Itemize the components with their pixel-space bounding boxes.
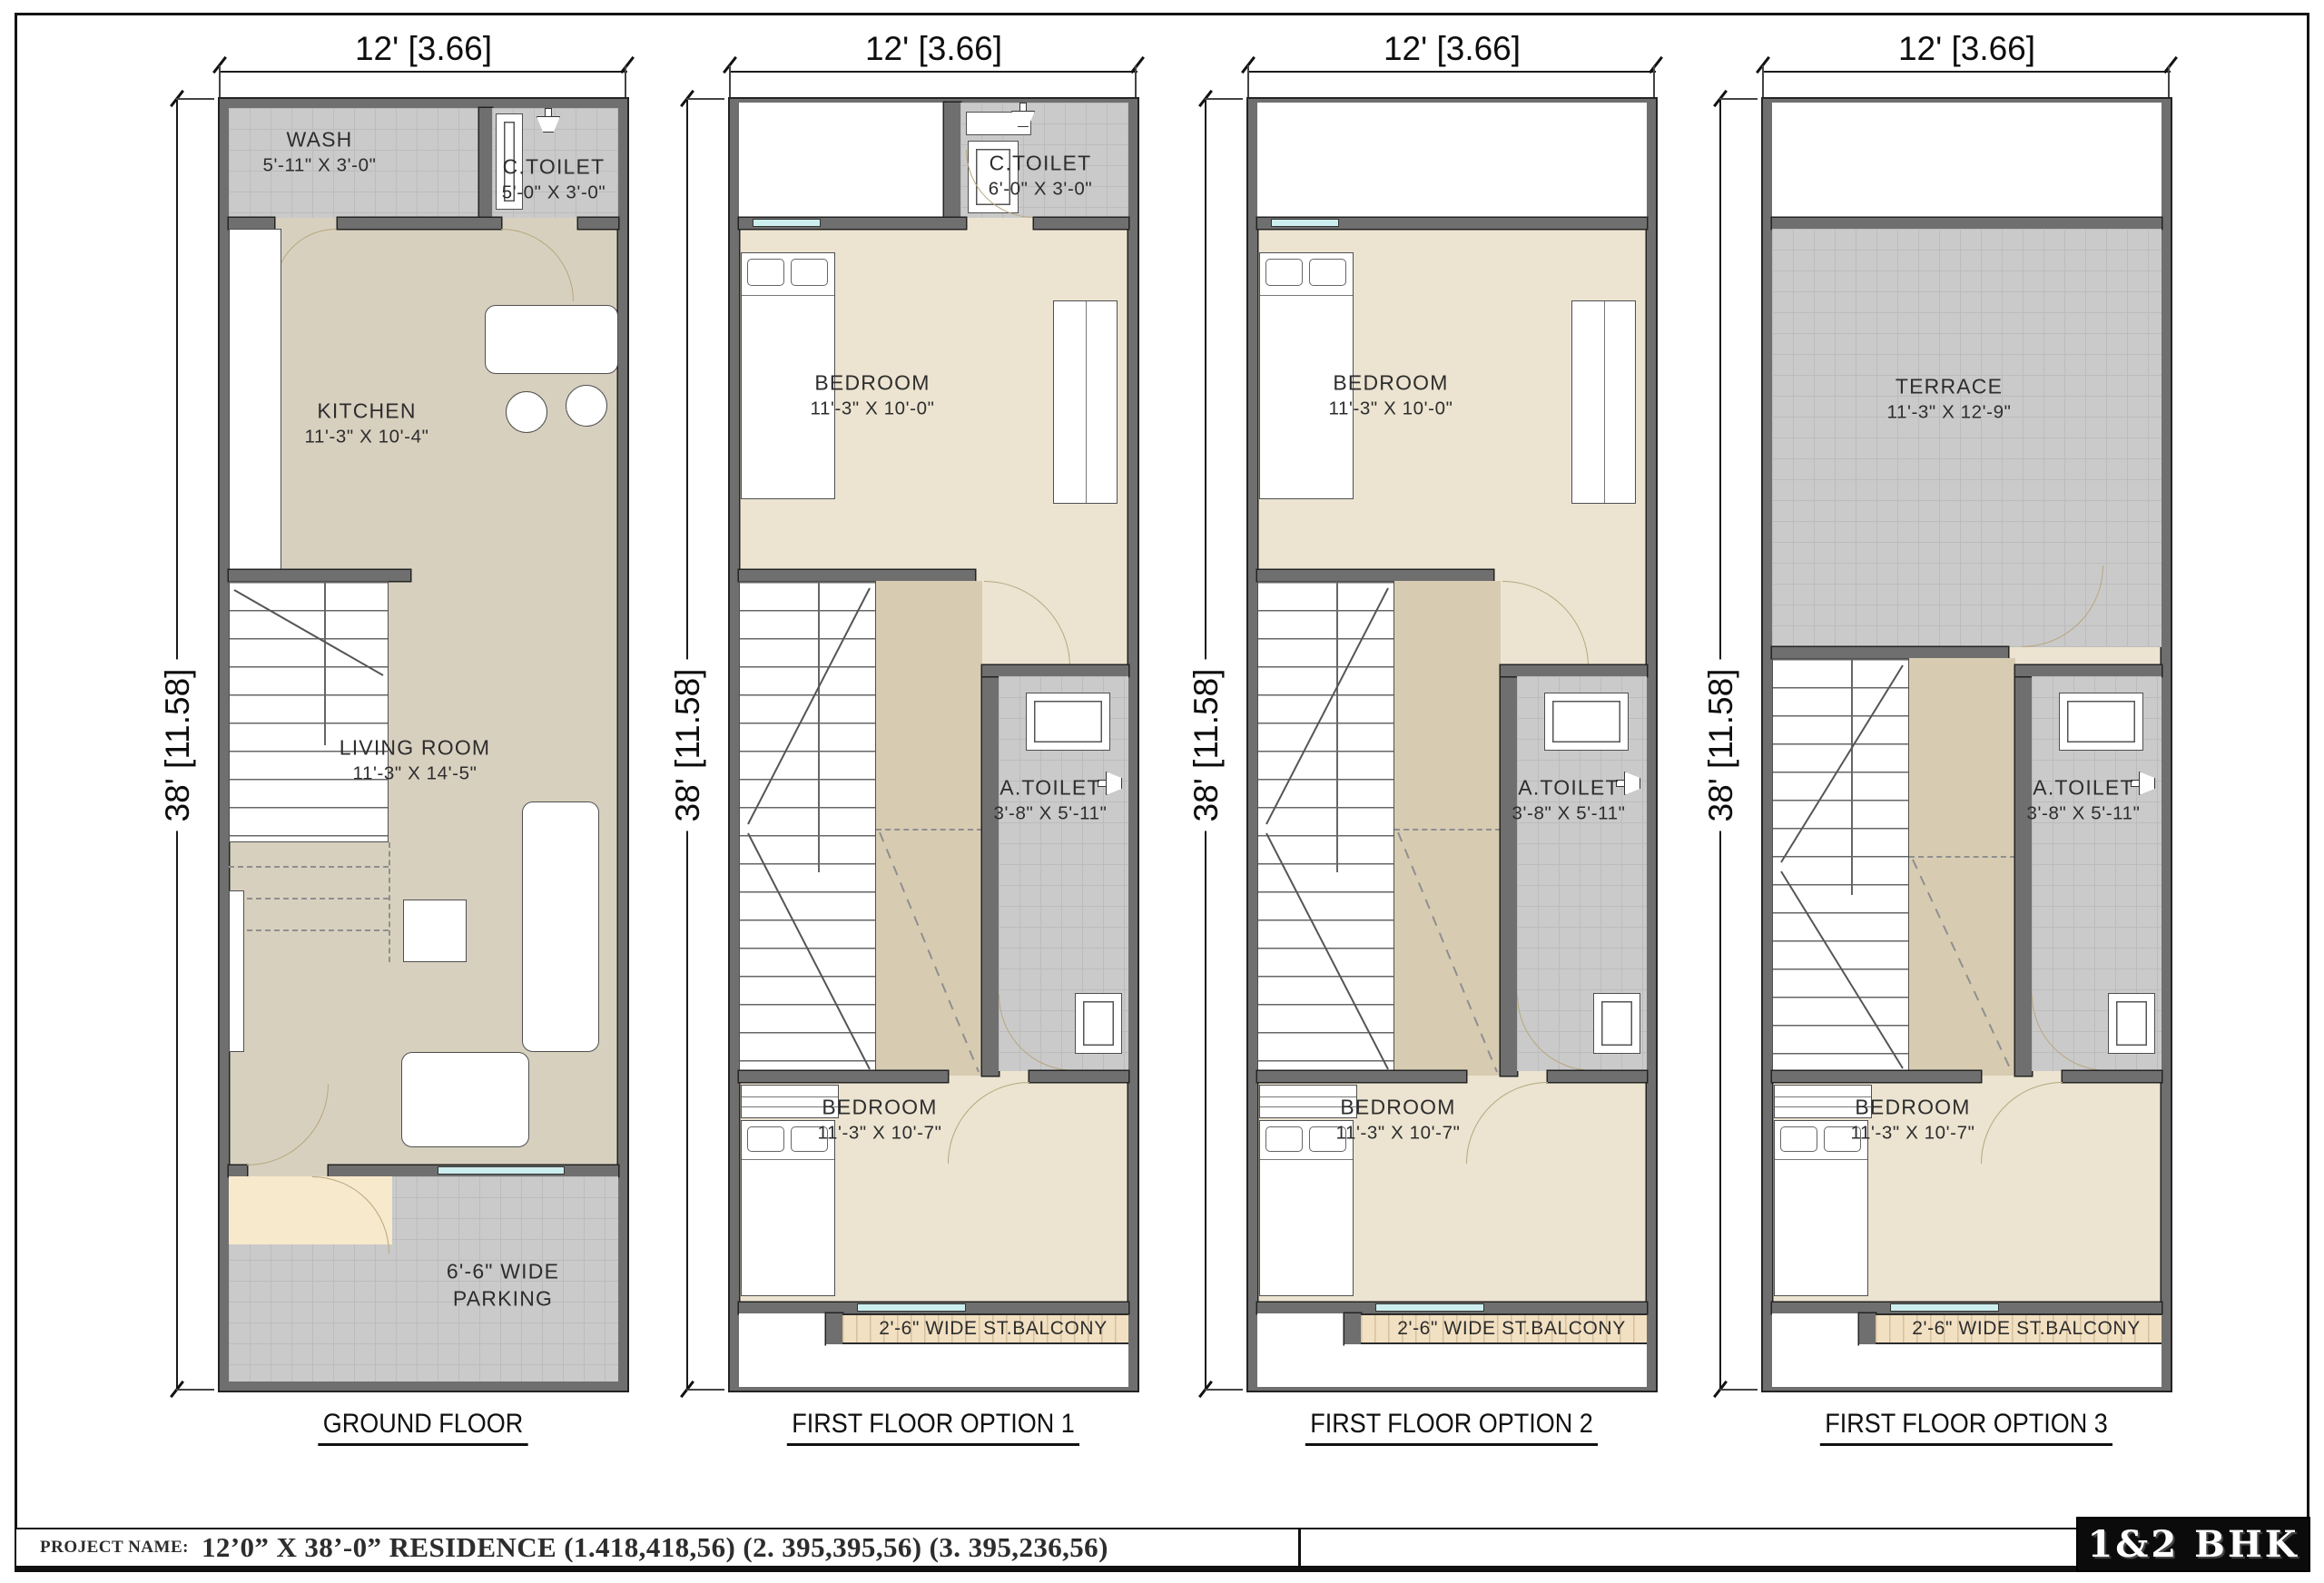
pillow bbox=[747, 259, 784, 286]
dining-table bbox=[485, 305, 618, 374]
dim-line-top: 12' [3.66] bbox=[730, 71, 1137, 73]
wall bbox=[739, 1071, 948, 1082]
open-area bbox=[1257, 1313, 1344, 1387]
wall bbox=[826, 1313, 842, 1344]
c-toilet-label: C.TOILET 6'-0" X 3'-0" bbox=[989, 149, 1093, 201]
dim-width-label: 12' [3.66] bbox=[1889, 30, 2044, 68]
bedroom-label: BEDROOM 11'-3" X 10'-0" bbox=[1329, 369, 1453, 420]
plan-first-floor-option-2: BEDROOM 11'-3" X 10'-0" A.TOILET 3'-8" X… bbox=[1248, 99, 1656, 1391]
parking-label: 6'-6" WIDE PARKING bbox=[447, 1258, 559, 1313]
wall bbox=[1029, 1071, 1128, 1082]
bed-line bbox=[742, 1159, 834, 1160]
plan-first-floor-option-1: C.TOILET 6'-0" X 3'-0" BEDROOM 11'-3" X … bbox=[730, 99, 1137, 1391]
witness-line bbox=[1719, 98, 1758, 100]
bhk-badge: 1&2 BHK bbox=[2076, 1517, 2310, 1572]
stair-dashed-line bbox=[229, 929, 389, 931]
witness-line bbox=[1205, 98, 1243, 100]
sink-icon bbox=[1008, 103, 1039, 128]
dim-line-side: 38' [11.58] bbox=[1719, 99, 1721, 1391]
bedroom-label: BEDROOM 11'-3" X 10'-7" bbox=[818, 1093, 942, 1145]
dim-height-label: 38' [11.58] bbox=[1187, 659, 1226, 831]
wc bbox=[1593, 993, 1640, 1054]
a-toilet-label: A.TOILET 3'-8" X 5'-11" bbox=[2027, 773, 2141, 825]
landing-dashed-diagonal bbox=[1909, 856, 2015, 1076]
witness-line bbox=[686, 98, 724, 100]
window bbox=[438, 1166, 565, 1175]
vanity bbox=[1544, 693, 1629, 751]
wardrobe bbox=[1571, 300, 1636, 504]
pillow bbox=[747, 1126, 784, 1152]
bedroom-label: BEDROOM 11'-3" X 10'-7" bbox=[1336, 1093, 1461, 1145]
wall bbox=[338, 218, 501, 229]
wall bbox=[1257, 570, 1493, 581]
dining-chair bbox=[566, 385, 607, 427]
wall bbox=[1344, 1313, 1361, 1344]
door-arc bbox=[247, 1084, 329, 1165]
title-bar-divider bbox=[1298, 1529, 1301, 1566]
wall bbox=[2015, 665, 2032, 1076]
title-bar: PROJECT NAME: 12’0” X 38’-0” RESIDENCE (… bbox=[15, 1528, 2309, 1572]
bed bbox=[1259, 1120, 1354, 1296]
plan-title-first-floor-option-2: FIRST FLOOR OPTION 2 bbox=[1305, 1409, 1598, 1446]
window bbox=[857, 1303, 966, 1312]
door-arc bbox=[1466, 1082, 1548, 1164]
wall bbox=[229, 570, 410, 581]
balcony-label: 2'-6" WIDE ST.BALCONY bbox=[1397, 1316, 1626, 1342]
dim-height-label: 38' [11.58] bbox=[159, 659, 197, 831]
dim-line-top: 12' [3.66] bbox=[1248, 71, 1656, 73]
wall bbox=[2015, 665, 2162, 676]
wall bbox=[944, 103, 960, 218]
wall bbox=[229, 1165, 247, 1176]
wash-label: WASH 5'-11" X 3'-0" bbox=[263, 125, 377, 177]
dim-height-label: 38' [11.58] bbox=[1702, 659, 1740, 831]
open-area bbox=[1772, 1313, 1859, 1387]
wardrobe-divider bbox=[1086, 301, 1088, 503]
wall bbox=[2063, 1071, 2162, 1082]
dim-width-label: 12' [3.66] bbox=[346, 30, 501, 68]
wall bbox=[982, 665, 1128, 676]
wall bbox=[1501, 665, 1517, 1076]
wall bbox=[739, 570, 975, 581]
kitchen-label: KITCHEN 11'-3" X 10'-4" bbox=[305, 397, 429, 448]
door-arc bbox=[274, 229, 336, 290]
bed-line bbox=[1775, 1159, 1867, 1160]
sofa bbox=[401, 1052, 529, 1147]
wall bbox=[1772, 218, 2162, 229]
living-room-label: LIVING ROOM 11'-3" X 14'-5" bbox=[340, 733, 491, 785]
wall bbox=[1034, 218, 1128, 229]
bed-line bbox=[1260, 295, 1353, 296]
plan-ground-floor: WASH 5'-11" X 3'-0" C.TOILET 5'-0" X 3'-… bbox=[220, 99, 627, 1391]
dining-chair bbox=[506, 391, 547, 433]
witness-line bbox=[176, 1389, 214, 1391]
wall bbox=[982, 665, 999, 1076]
wall bbox=[1501, 665, 1647, 676]
plan-title-first-floor-option-3: FIRST FLOOR OPTION 3 bbox=[1820, 1409, 2112, 1446]
wall bbox=[578, 218, 618, 229]
bedroom-label: BEDROOM 11'-3" X 10'-7" bbox=[1851, 1093, 1975, 1145]
c-toilet-label: C.TOILET 5'-0" X 3'-0" bbox=[502, 152, 606, 204]
wall bbox=[1772, 647, 2008, 658]
wall bbox=[479, 108, 492, 218]
balcony-label: 2'-6" WIDE ST.BALCONY bbox=[879, 1316, 1108, 1342]
door-arc bbox=[501, 229, 574, 301]
tv-unit bbox=[229, 890, 244, 1052]
balcony-label: 2'-6" WIDE ST.BALCONY bbox=[1912, 1316, 2141, 1342]
witness-line bbox=[1205, 1389, 1243, 1391]
pillow bbox=[1780, 1126, 1817, 1152]
sofa bbox=[522, 801, 599, 1052]
bed-line bbox=[742, 295, 834, 296]
project-title: 12’0” X 38’-0” RESIDENCE (1.418,418,56) … bbox=[202, 1531, 1108, 1564]
dim-line-top: 12' [3.66] bbox=[1763, 71, 2171, 73]
pillow bbox=[1265, 1126, 1303, 1152]
wardrobe bbox=[1053, 300, 1118, 504]
open-strip bbox=[739, 103, 944, 218]
door-arc bbox=[1502, 581, 1589, 667]
wall bbox=[1548, 1071, 1647, 1082]
witness-line bbox=[176, 98, 214, 100]
open-area bbox=[826, 1344, 1128, 1387]
window bbox=[1375, 1303, 1484, 1312]
landing-dashed-diagonal bbox=[876, 829, 982, 1076]
open-strip bbox=[1257, 103, 1647, 218]
a-toilet-label: A.TOILET 3'-8" X 5'-11" bbox=[994, 773, 1108, 825]
kitchen-platform bbox=[229, 229, 281, 581]
project-name-label: PROJECT NAME: bbox=[40, 1538, 189, 1558]
dim-line-side: 38' [11.58] bbox=[686, 99, 688, 1391]
dim-height-label: 38' [11.58] bbox=[669, 659, 707, 831]
vanity bbox=[2059, 693, 2143, 751]
stair-dashed-line bbox=[389, 842, 390, 962]
sink-icon bbox=[533, 108, 564, 133]
open-area bbox=[1859, 1344, 2162, 1387]
wall bbox=[1859, 1313, 1876, 1344]
witness-line bbox=[1719, 1389, 1758, 1391]
bed-line bbox=[1260, 1159, 1353, 1160]
dim-line-side: 38' [11.58] bbox=[176, 99, 178, 1391]
terrace-label: TERRACE 11'-3" X 12'-9" bbox=[1887, 372, 2012, 424]
dim-width-label: 12' [3.66] bbox=[1374, 30, 1530, 68]
pillow bbox=[1265, 259, 1303, 286]
plan-title-ground-floor: GROUND FLOOR bbox=[318, 1409, 527, 1446]
open-area bbox=[1344, 1344, 1647, 1387]
wall bbox=[229, 218, 274, 229]
door-arc bbox=[984, 581, 1070, 667]
stair-direction-line bbox=[1257, 581, 1394, 1076]
plan-title-first-floor-option-1: FIRST FLOOR OPTION 1 bbox=[787, 1409, 1079, 1446]
dim-line-top: 12' [3.66] bbox=[220, 71, 627, 73]
stair-direction-line bbox=[229, 581, 389, 842]
pillow bbox=[1309, 259, 1346, 286]
wc bbox=[2108, 993, 2155, 1054]
landing-dashed-diagonal bbox=[1394, 829, 1501, 1076]
dim-width-label: 12' [3.66] bbox=[856, 30, 1011, 68]
window bbox=[1890, 1303, 1999, 1312]
a-toilet-label: A.TOILET 3'-8" X 5'-11" bbox=[1512, 773, 1626, 825]
window bbox=[1271, 219, 1339, 227]
coffee-table bbox=[403, 900, 467, 962]
wall bbox=[1257, 1071, 1466, 1082]
door-arc bbox=[948, 1082, 1029, 1164]
stair-dashed-line bbox=[229, 898, 389, 900]
vanity bbox=[1026, 693, 1110, 751]
stair-direction-line bbox=[739, 581, 876, 1076]
dim-line-side: 38' [11.58] bbox=[1205, 99, 1206, 1391]
plan-first-floor-option-3: TERRACE 11'-3" X 12'-9" A.TOILET 3'-8" X… bbox=[1763, 99, 2171, 1391]
open-area bbox=[739, 1313, 826, 1387]
witness-line bbox=[686, 1389, 724, 1391]
terrace-area bbox=[1772, 229, 2162, 647]
bedroom-label: BEDROOM 11'-3" X 10'-0" bbox=[811, 369, 935, 420]
window bbox=[753, 219, 821, 227]
wall bbox=[1772, 1071, 1981, 1082]
pillow bbox=[791, 259, 828, 286]
door-arc bbox=[1981, 1082, 2063, 1164]
wc bbox=[1075, 993, 1122, 1054]
wardrobe-divider bbox=[1604, 301, 1606, 503]
open-strip bbox=[1772, 103, 2162, 218]
bed bbox=[741, 1120, 835, 1296]
bed bbox=[1774, 1120, 1868, 1296]
stair-dashed-line bbox=[229, 866, 389, 868]
stair-direction-line bbox=[1772, 658, 1909, 1076]
